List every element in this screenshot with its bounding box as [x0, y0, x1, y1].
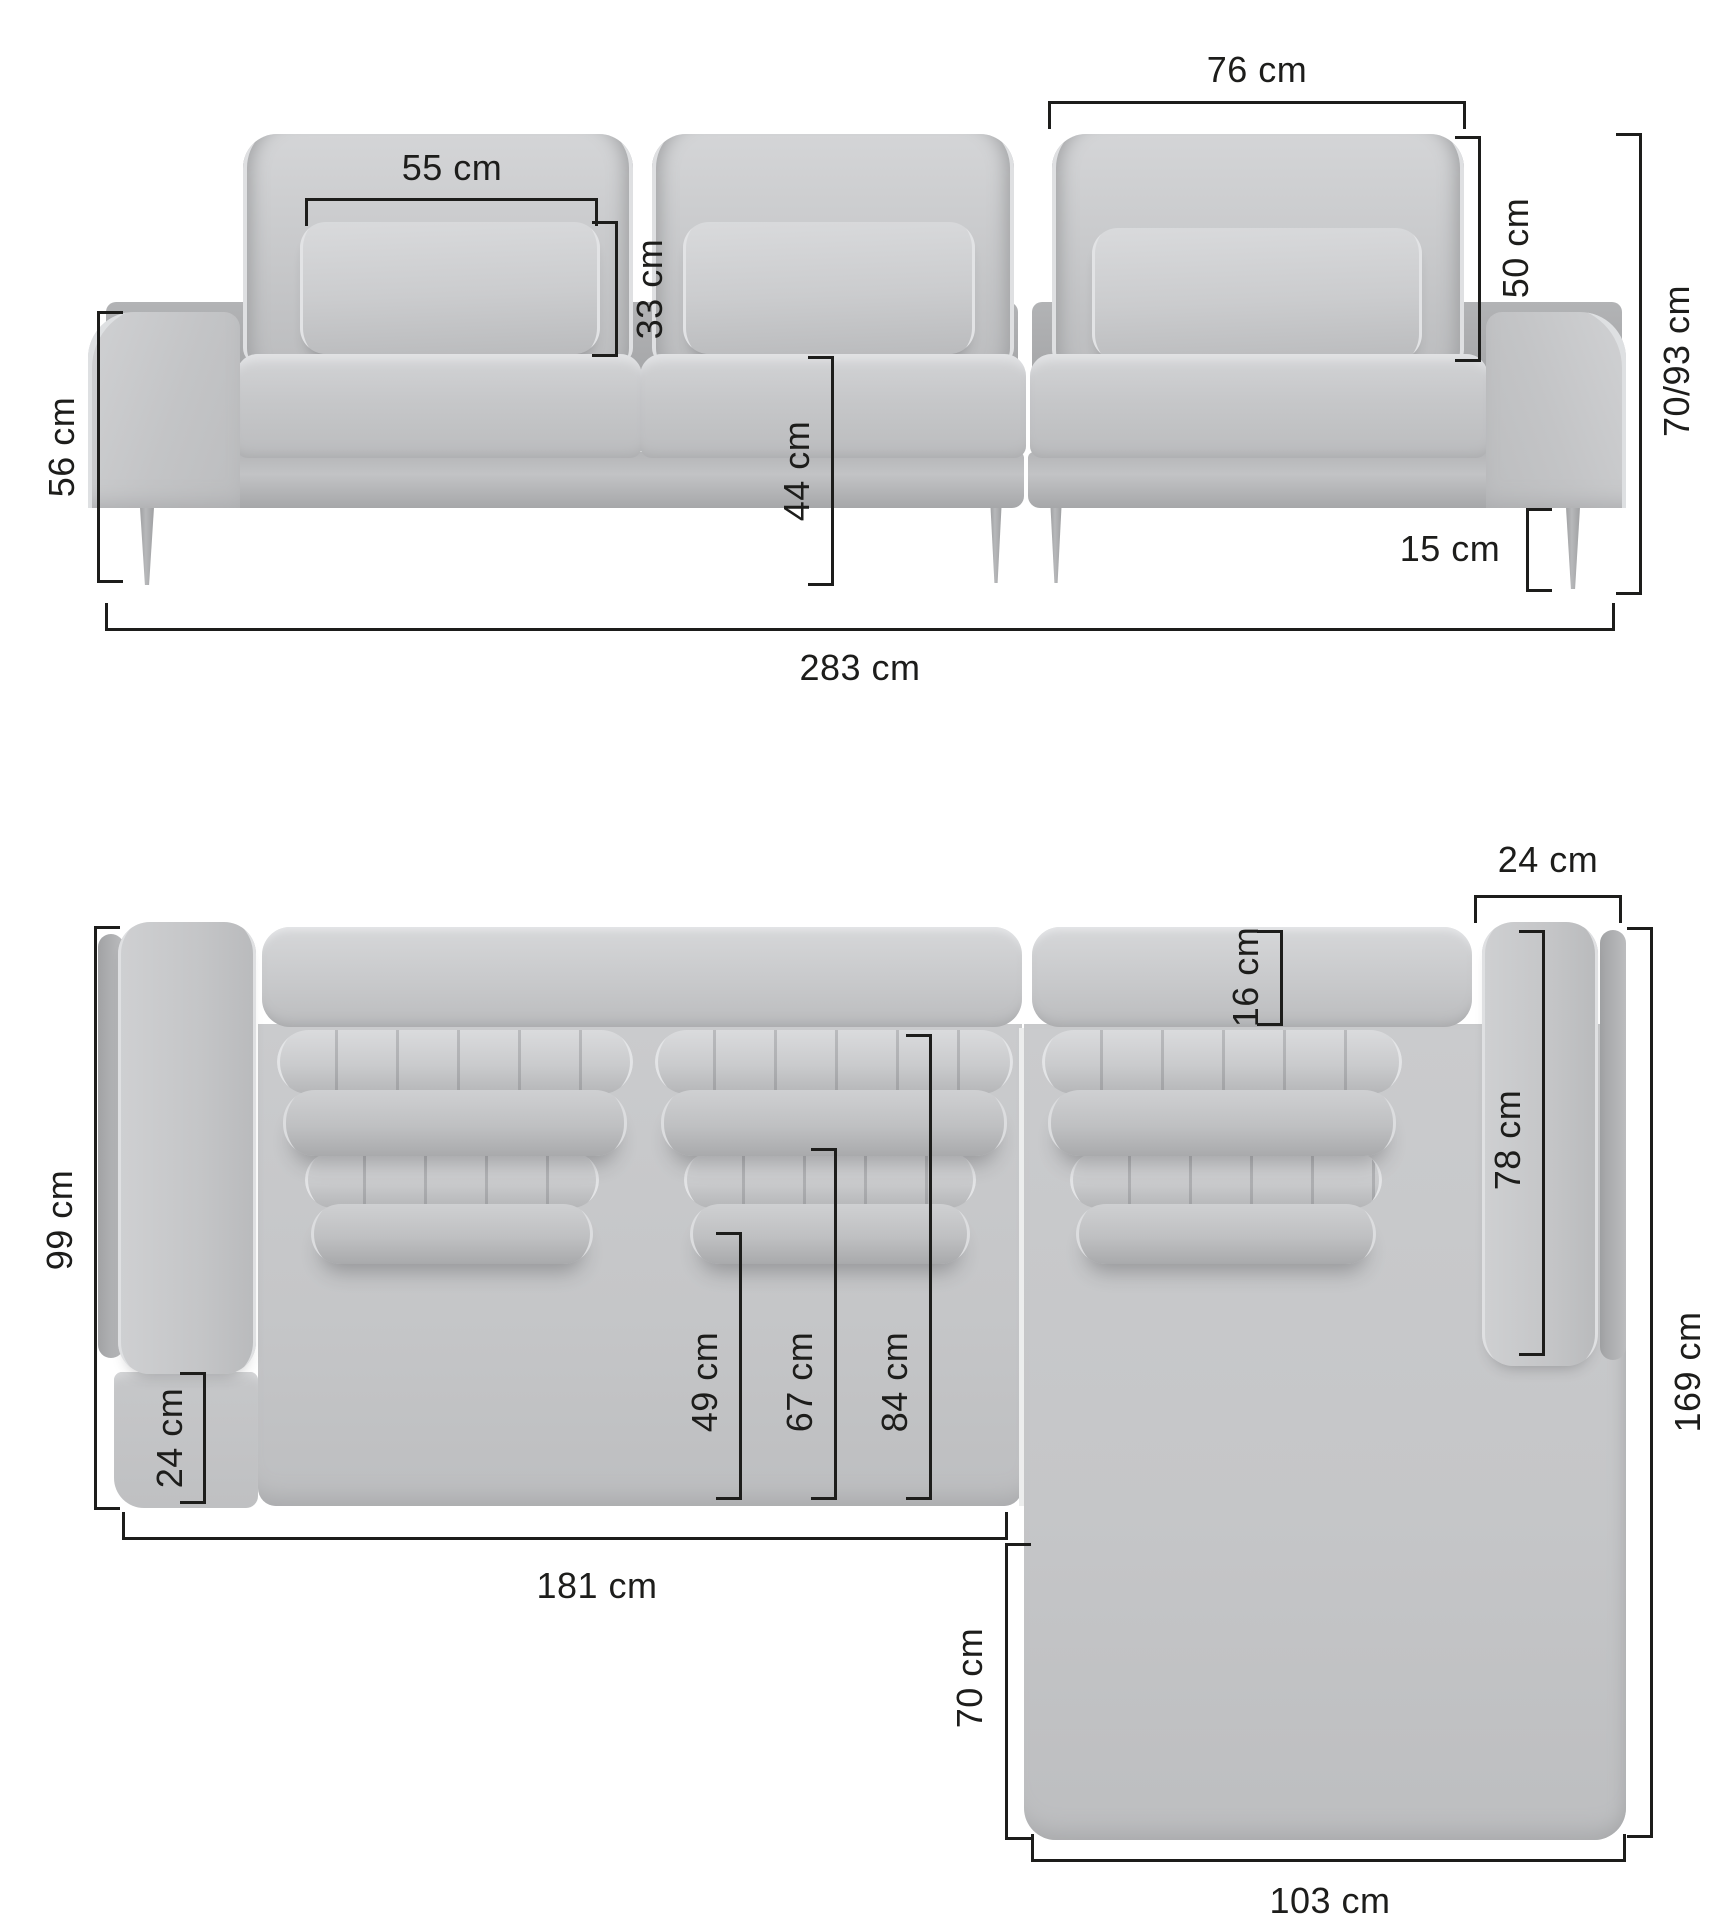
- dim-arm-height-label: 56 cm: [41, 397, 83, 498]
- seat-cushion-left: [236, 354, 642, 458]
- dim-seat-height-label: 44 cm: [776, 421, 818, 522]
- dim-total-width-line: [105, 628, 1615, 631]
- plan-back-cushion-left-front: [283, 1090, 627, 1156]
- dim-seat-depth-1-label: 49 cm: [684, 1332, 726, 1433]
- dim-pillow-width-line: [305, 198, 598, 201]
- dim-backrest-width-line: [1048, 101, 1466, 104]
- plan-lumbar-right-top: [1070, 1152, 1382, 1208]
- lumbar-pillow-middle: [683, 222, 975, 354]
- dim-front-corner-line: [203, 1372, 206, 1504]
- dim-chaise-inner-label: 70 cm: [949, 1628, 991, 1729]
- dim-backrest-width-label: 76 cm: [1207, 49, 1308, 91]
- dim-backrest-height-line: [1478, 136, 1481, 362]
- dim-chaise-width-label: 103 cm: [1269, 1880, 1390, 1920]
- dim-seat-depth-1-line: [739, 1232, 742, 1500]
- dim-chaise-width-line: [1031, 1859, 1626, 1862]
- dim-leg-height-line: [1526, 508, 1529, 592]
- dim-left-depth-line: [94, 926, 97, 1510]
- plan-left-armrest: [118, 922, 256, 1374]
- plan-lumbar-middle-top: [684, 1152, 976, 1208]
- plan-back-cushion-middle-front: [661, 1090, 1007, 1156]
- dim-pillow-height-line: [615, 221, 618, 357]
- dim-seat-height-line: [831, 356, 834, 586]
- lumbar-pillow-right: [1092, 228, 1422, 360]
- dim-front-corner-label: 24 cm: [149, 1388, 191, 1489]
- dim-chaise-inner-line: [1005, 1543, 1008, 1840]
- plan-back-cushion-left-top: [277, 1030, 633, 1094]
- dim-seat-depth-2-line: [834, 1148, 837, 1500]
- plan-right-arm-outer-edge: [1600, 930, 1626, 1360]
- dim-seat-depth-2-label: 67 cm: [779, 1332, 821, 1433]
- dim-seat-depth-3-label: 84 cm: [874, 1332, 916, 1433]
- dim-left-depth-label: 99 cm: [39, 1170, 81, 1271]
- dim-leg-height-label: 15 cm: [1400, 528, 1501, 570]
- seat-cushion-right: [1030, 354, 1488, 458]
- dim-pillow-height-label: 33 cm: [629, 239, 671, 340]
- lumbar-pillow-left: [300, 222, 600, 354]
- dim-back-depth-line: [1280, 930, 1283, 1026]
- plan-back-rail-left: [262, 927, 1022, 1027]
- dim-back-depth-label: 16 cm: [1225, 927, 1267, 1028]
- dim-arm-width-line: [1474, 895, 1622, 898]
- dim-arm-height-line: [97, 311, 100, 583]
- dim-total-depth-label: 169 cm: [1667, 1311, 1709, 1432]
- plan-lumbar-right-front: [1076, 1204, 1376, 1264]
- sofa-dimension-diagram: 76 cm 55 cm 33 cm 50 cm 56 cm 44 cm 70/9…: [0, 0, 1718, 1920]
- dim-left-width-label: 181 cm: [536, 1565, 657, 1607]
- plan-module-seam: [1019, 1028, 1024, 1506]
- dim-armrest-length-line: [1542, 930, 1545, 1356]
- dim-pillow-width-label: 55 cm: [402, 147, 503, 189]
- armrest-left: [88, 312, 240, 508]
- dim-total-width-label: 283 cm: [799, 647, 920, 689]
- dim-total-height-line: [1639, 133, 1642, 595]
- plan-back-cushion-middle-top: [655, 1030, 1013, 1094]
- plan-back-cushion-right-front: [1048, 1090, 1396, 1156]
- dim-backrest-height-label: 50 cm: [1495, 198, 1537, 299]
- dim-left-width-line: [122, 1537, 1008, 1540]
- armrest-right: [1486, 312, 1626, 508]
- plan-lumbar-left-front: [311, 1204, 593, 1264]
- dim-total-depth-line: [1650, 927, 1653, 1838]
- plan-back-cushion-right-top: [1042, 1030, 1402, 1094]
- dim-seat-depth-3-line: [929, 1034, 932, 1500]
- dim-armrest-length-label: 78 cm: [1487, 1090, 1529, 1191]
- plan-lumbar-left-top: [305, 1152, 599, 1208]
- dim-total-height-label: 70/93 cm: [1656, 285, 1698, 437]
- dim-arm-width-label: 24 cm: [1498, 839, 1599, 881]
